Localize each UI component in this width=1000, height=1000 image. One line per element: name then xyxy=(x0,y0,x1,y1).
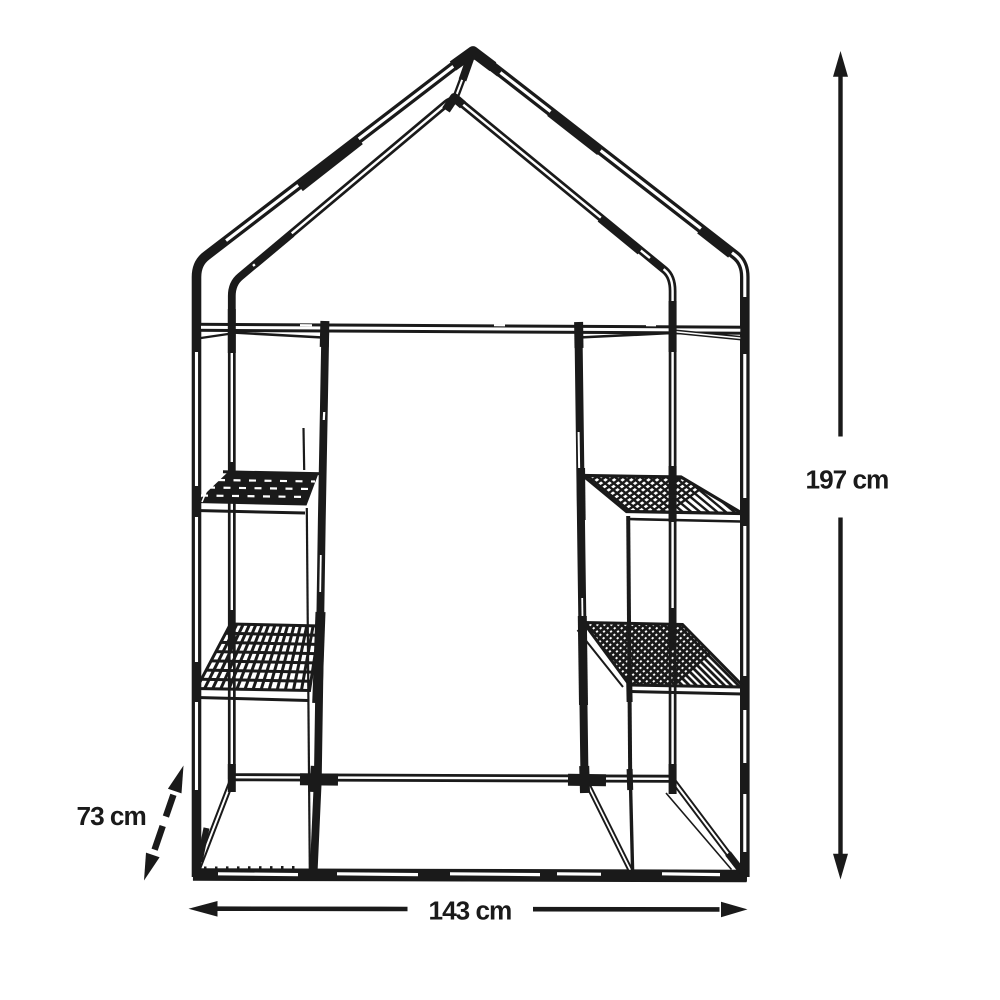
svg-text:143 cm: 143 cm xyxy=(429,895,512,925)
svg-text:73 cm: 73 cm xyxy=(77,801,146,831)
svg-text:197 cm: 197 cm xyxy=(806,465,889,495)
